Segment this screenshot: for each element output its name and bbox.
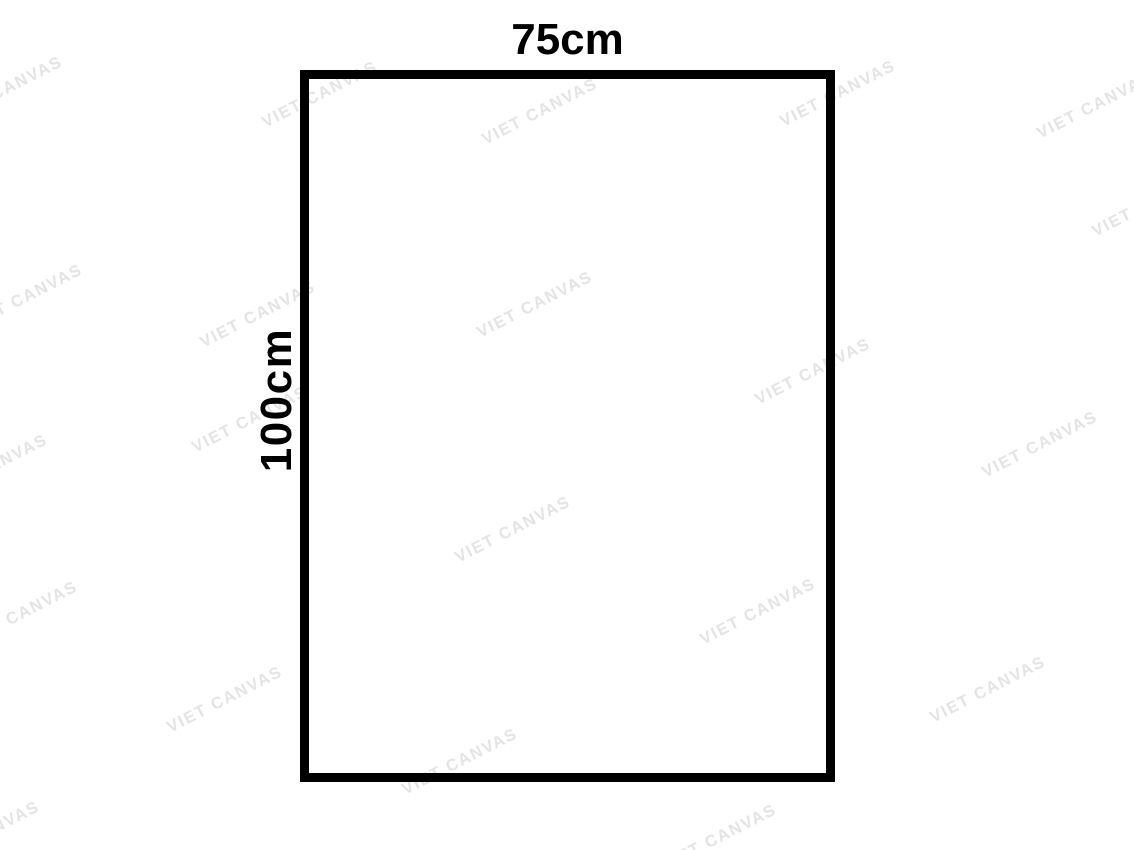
canvas-size-diagram: 75cm 100cm	[0, 0, 1134, 850]
dimension-diagram-page: VIET CANVASVIET CANVASVIET CANVASVIET CA…	[0, 0, 1134, 850]
height-dimension-label: 100cm	[255, 328, 299, 473]
width-dimension-label: 75cm	[300, 18, 835, 62]
canvas-outline-rectangle	[300, 70, 835, 782]
